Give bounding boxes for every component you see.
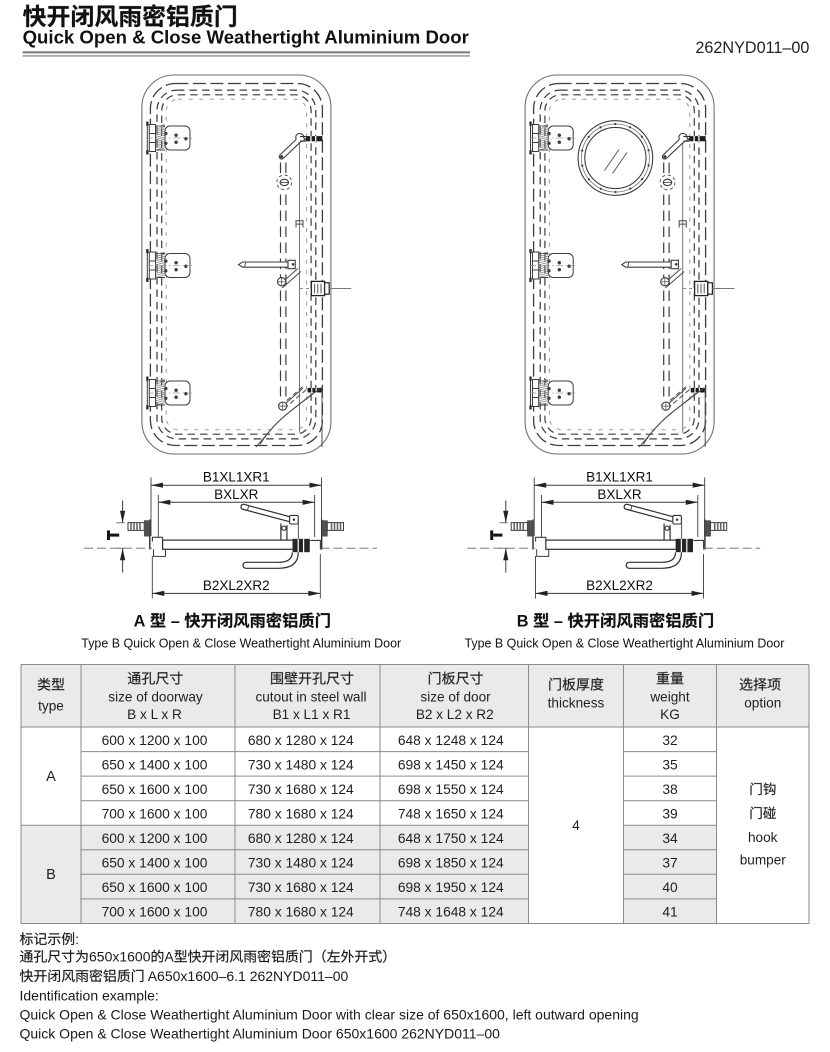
- svg-text:262NYD011–00: 262NYD011–00: [695, 39, 809, 57]
- svg-text:600 x 1200 x 100: 600 x 1200 x 100: [102, 831, 208, 846]
- svg-text:698 x 1550 x 124: 698 x 1550 x 124: [398, 782, 504, 797]
- svg-text:Quick Open & Close Weathertigh: Quick Open & Close Weathertight Aluminiu…: [20, 1007, 639, 1023]
- svg-text:650 x 1600 x 100: 650 x 1600 x 100: [102, 880, 208, 895]
- svg-text:698 x 1950 x 124: 698 x 1950 x 124: [398, 880, 504, 895]
- svg-text:hook: hook: [748, 830, 778, 845]
- svg-text:size of door: size of door: [420, 689, 491, 704]
- svg-text:B2 x L2 x R2: B2 x L2 x R2: [416, 707, 494, 722]
- svg-text:40: 40: [662, 880, 678, 895]
- svg-text:weight: weight: [649, 689, 690, 704]
- svg-text:B: B: [517, 613, 533, 631]
- svg-text:698 x 1850 x 124: 698 x 1850 x 124: [398, 856, 504, 871]
- svg-text:730 x 1680 x 124: 730 x 1680 x 124: [248, 782, 354, 797]
- svg-text:748 x 1648 x 124: 748 x 1648 x 124: [398, 905, 504, 920]
- svg-text:600 x 1200 x 100: 600 x 1200 x 100: [102, 733, 208, 748]
- svg-text::: :: [75, 931, 79, 947]
- svg-text:Type B Quick Open & Close Weat: Type B Quick Open & Close Weathertight A…: [81, 637, 401, 651]
- svg-text:Quick Open & Close Weathertigh: Quick Open & Close Weathertight Aluminiu…: [20, 1026, 501, 1042]
- svg-text:A: A: [46, 769, 56, 785]
- svg-text:bumper: bumper: [740, 853, 787, 868]
- svg-text:Identification example:: Identification example:: [20, 988, 159, 1004]
- svg-text:B1 x L1 x R1: B1 x L1 x R1: [273, 707, 351, 722]
- svg-text:B x L x R: B x L x R: [127, 707, 182, 722]
- svg-text:730 x 1680 x 124: 730 x 1680 x 124: [248, 880, 354, 895]
- svg-text:730 x 1480 x 124: 730 x 1480 x 124: [248, 757, 354, 772]
- svg-text:41: 41: [662, 905, 677, 920]
- svg-text:4: 4: [572, 818, 580, 833]
- svg-text:32: 32: [662, 733, 677, 748]
- svg-text:650 x 1400 x 100: 650 x 1400 x 100: [102, 856, 208, 871]
- svg-text:size of doorway: size of doorway: [108, 689, 203, 704]
- svg-text:680 x 1280 x 124: 680 x 1280 x 124: [248, 831, 354, 846]
- svg-text:–: –: [166, 613, 184, 631]
- svg-text:648 x 1248 x 124: 648 x 1248 x 124: [398, 733, 504, 748]
- svg-text:39: 39: [662, 807, 678, 822]
- svg-text:748 x 1650 x 124: 748 x 1650 x 124: [398, 807, 504, 822]
- svg-text:A: A: [134, 613, 150, 631]
- svg-text:780 x 1680 x 124: 780 x 1680 x 124: [248, 905, 354, 920]
- svg-text:–: –: [549, 613, 567, 631]
- svg-text:730 x 1480 x 124: 730 x 1480 x 124: [248, 856, 354, 871]
- svg-text:38: 38: [662, 782, 678, 797]
- svg-text:B: B: [46, 867, 56, 883]
- svg-text:A: A: [164, 949, 174, 965]
- svg-text:A650x1600–6.1 262NYD011–00: A650x1600–6.1 262NYD011–00: [145, 968, 349, 984]
- svg-text:KG: KG: [660, 707, 680, 722]
- svg-text:34: 34: [662, 831, 678, 846]
- svg-text:cutout in steel wall: cutout in steel wall: [255, 689, 366, 704]
- svg-text:type: type: [38, 699, 64, 714]
- svg-text:37: 37: [662, 856, 677, 871]
- svg-text:680 x 1280 x 124: 680 x 1280 x 124: [248, 733, 354, 748]
- svg-text:650 x 1400 x 100: 650 x 1400 x 100: [102, 757, 208, 772]
- svg-text:Type B Quick Open & Close Weat: Type B Quick Open & Close Weathertight A…: [465, 637, 785, 651]
- svg-text:650 x 1600 x 100: 650 x 1600 x 100: [102, 782, 208, 797]
- svg-text:option: option: [744, 696, 781, 711]
- svg-text:648 x 1750 x 124: 648 x 1750 x 124: [398, 831, 504, 846]
- svg-text:Quick Open & Close Weathertigh: Quick Open & Close Weathertight Aluminiu…: [23, 27, 469, 48]
- svg-text:thickness: thickness: [548, 696, 605, 711]
- svg-text:700 x 1600 x 100: 700 x 1600 x 100: [102, 807, 208, 822]
- svg-text:700 x 1600 x 100: 700 x 1600 x 100: [102, 905, 208, 920]
- svg-text:780 x 1680 x 124: 780 x 1680 x 124: [248, 807, 354, 822]
- svg-text:35: 35: [662, 757, 678, 772]
- svg-text:650x1600: 650x1600: [89, 949, 151, 965]
- svg-text:698 x 1450 x 124: 698 x 1450 x 124: [398, 757, 504, 772]
